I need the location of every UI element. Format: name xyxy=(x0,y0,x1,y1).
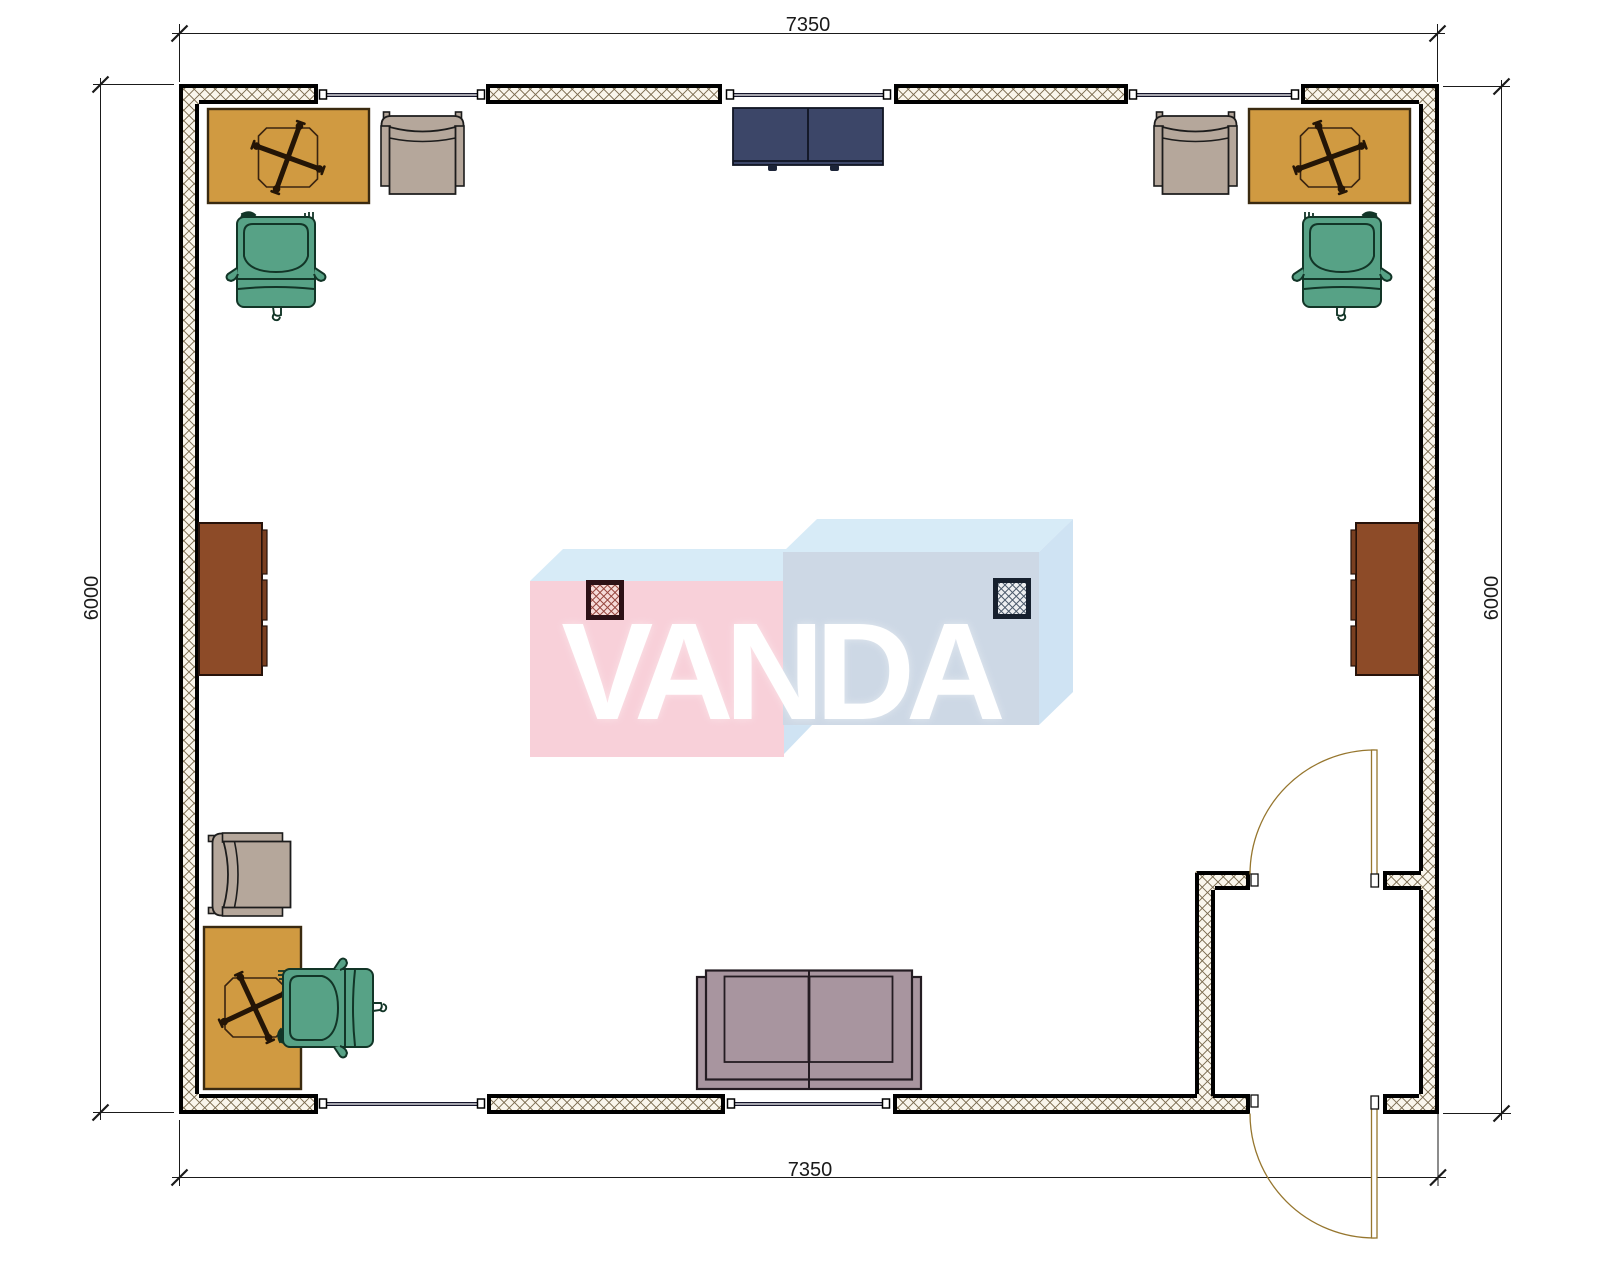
svg-text:VANDA: VANDA xyxy=(561,595,1003,749)
svg-text:7350: 7350 xyxy=(788,1159,833,1181)
svg-text:7350: 7350 xyxy=(786,14,831,36)
svg-text:6000: 6000 xyxy=(81,576,103,621)
svg-text:6000: 6000 xyxy=(1481,576,1503,621)
